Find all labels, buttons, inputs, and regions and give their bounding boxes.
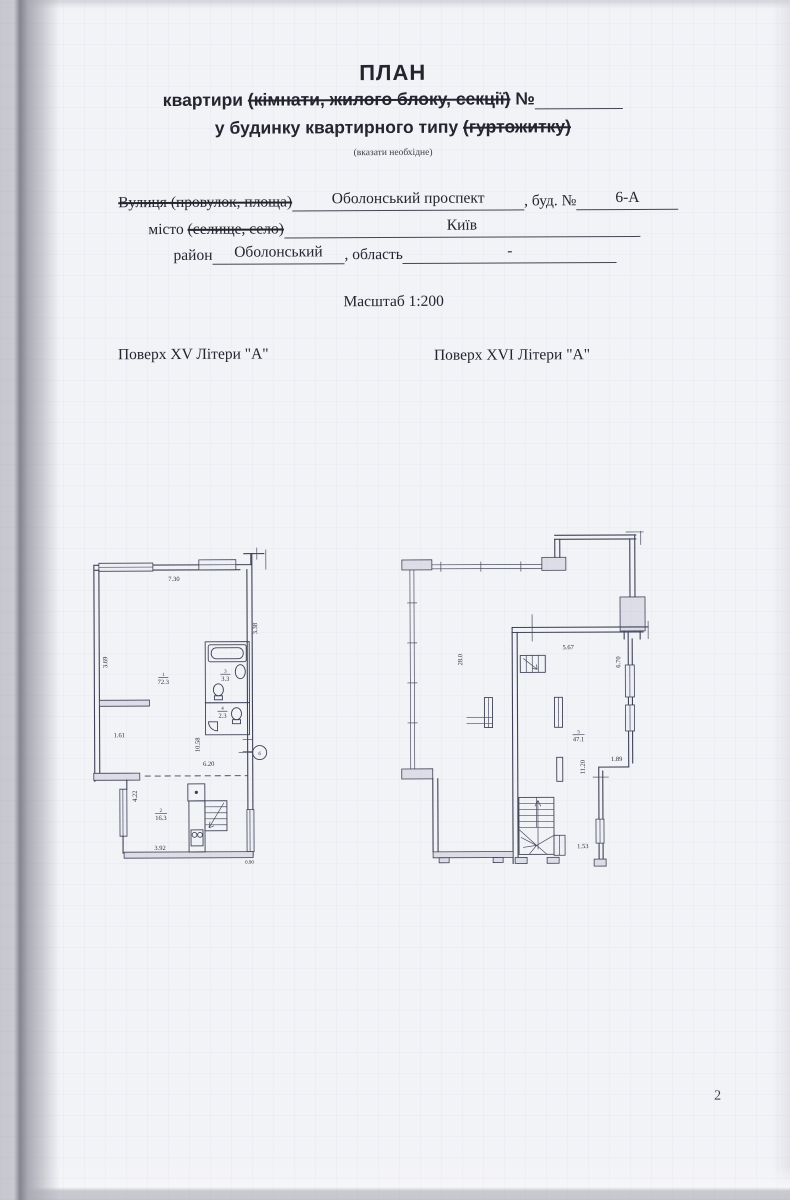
header-note: (вказати необхідне) xyxy=(0,146,788,159)
region-value: - xyxy=(403,242,617,264)
scanned-document-page: ПЛАН квартири (кімнати, жилого блоку, се… xyxy=(0,0,790,1200)
building-label: , буд. № xyxy=(524,192,576,209)
dim-bottom: 3.92 xyxy=(154,845,165,852)
floor-plan-xv: б 7.30 3.38 3.69 1.61 10.58 6.20 4.22 3.… xyxy=(80,544,273,877)
dim-mid: 11.20 xyxy=(580,760,587,774)
dim-left-lower: 4.22 xyxy=(132,790,139,801)
subtitle1-post: № xyxy=(510,88,534,108)
scale-label: Масштаб 1:200 xyxy=(0,291,789,312)
dim-hall: 6.20 xyxy=(203,761,214,768)
room-4-label: 4 2.3 xyxy=(217,707,227,720)
region-label: , область xyxy=(344,246,402,263)
dim-right: 3.38 xyxy=(252,623,259,634)
floor-xv-label: Поверх XV Літери "А" xyxy=(118,346,269,365)
floor-plan-xvi: 28.0 5.67 6.70 11.20 1.89 1.53 5 47.1 xyxy=(396,527,674,876)
room-1-area: 72.3 xyxy=(158,679,169,686)
dim-right-upper: 6.70 xyxy=(615,656,622,667)
dim-top: 5.67 xyxy=(563,644,575,651)
floor-xvi-label: Поверх XVI Літери "А" xyxy=(434,346,590,365)
city-value: Київ xyxy=(284,216,640,239)
apartment-number-blank xyxy=(535,90,623,109)
address-street-line: Вулиця (провулок, площа)Оболонський прос… xyxy=(118,189,678,212)
dim-left-mid: 1.61 xyxy=(114,732,125,739)
dim-right-mid: 1.89 xyxy=(611,756,622,763)
axis-marker-label: б xyxy=(258,752,261,757)
room-1-label: 1 72.3 xyxy=(158,673,169,686)
street-label: Вулиця (провулок, площа) xyxy=(118,193,292,211)
page-number: 2 xyxy=(714,1089,721,1105)
room-3-label: 3 3.3 xyxy=(220,670,230,683)
room-3-area: 3.3 xyxy=(221,676,229,683)
document-content: ПЛАН квартири (кімнати, жилого блоку, се… xyxy=(0,0,790,1200)
room-2-area: 16.3 xyxy=(155,815,166,822)
room-5-label: 5 47.1 xyxy=(573,730,585,743)
city-label: місто xyxy=(148,221,187,238)
dim-left-upper: 3.69 xyxy=(102,657,109,668)
header-subtitle-line2: у будинку квартирного типу (гуртожитку) xyxy=(0,115,788,139)
room-2-label: 2 16.3 xyxy=(155,809,167,822)
page-title: ПЛАН xyxy=(0,58,788,87)
header-subtitle-line1: квартири (кімнати, жилого блоку, секції)… xyxy=(0,87,788,111)
address-district-line: районОболонський, область- xyxy=(173,242,616,265)
room-4-area: 2.3 xyxy=(218,713,226,720)
room-5-area: 47.1 xyxy=(573,736,584,743)
dim-stairs: 1.53 xyxy=(577,843,588,850)
dim-corner: 0.90 xyxy=(245,861,254,866)
district-value: Оболонський xyxy=(212,243,344,265)
address-city-line: місто (селище, село)Київ xyxy=(148,216,640,239)
dim-terrace: 28.0 xyxy=(457,654,464,665)
subtitle1-struck: (кімнати, жилого блоку, секції) xyxy=(248,88,511,109)
subtitle1-pre: квартири xyxy=(163,90,248,110)
street-value: Оболонський проспект xyxy=(292,189,524,211)
dim-top: 7.30 xyxy=(168,576,179,583)
city-label-struck: (селище, село) xyxy=(188,220,284,237)
district-label: район xyxy=(173,247,212,264)
subtitle2-struck: (гуртожитку) xyxy=(463,116,571,136)
dim-shaft: 10.58 xyxy=(195,738,202,753)
building-value: 6-А xyxy=(576,189,678,210)
subtitle2-pre: у будинку квартирного типу xyxy=(215,117,463,138)
